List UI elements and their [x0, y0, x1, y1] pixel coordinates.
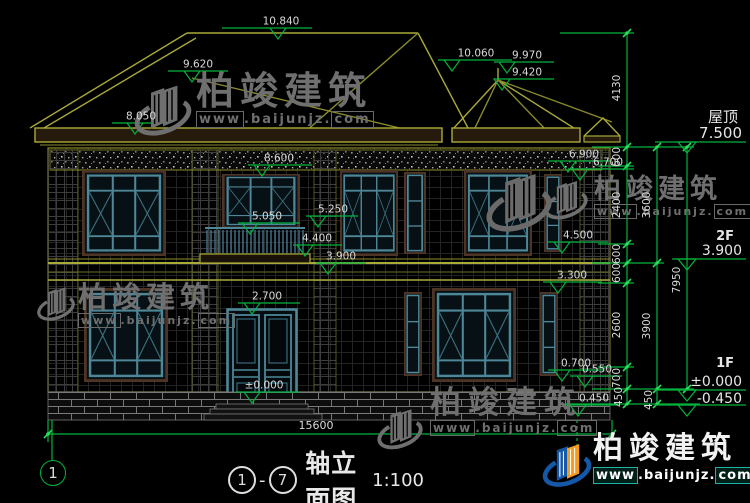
- company-logo-url-www: www: [593, 467, 638, 484]
- watermark-brand: 柏竣建筑: [430, 388, 597, 419]
- drawing-scale: 1:100: [372, 470, 424, 491]
- floor2-label: 2F: [716, 229, 734, 244]
- watermark-url-mid: .baijunjz.: [475, 421, 557, 435]
- level-2700: 2.700: [252, 292, 282, 303]
- company-logo-url-mid: .baijunjz.: [638, 468, 715, 483]
- watermark-url-mid: .baijunjz.: [244, 112, 331, 127]
- level-4500: 4.500: [563, 231, 593, 242]
- level-10840: 10.840: [263, 17, 300, 28]
- watermark-brand: 柏竣建筑: [196, 72, 374, 110]
- level-4400: 4.400: [302, 234, 332, 245]
- elevation-drawing-canvas: 柏竣建筑 www.baijunjz.com 柏竣建筑 www.baijunjz.…: [0, 0, 750, 503]
- level-10060: 10.060: [458, 49, 495, 60]
- title-axis-start-bubble: 1: [228, 466, 256, 494]
- title-axis-end: 7: [278, 471, 288, 489]
- level-8050: 8.050: [126, 112, 156, 123]
- total-width-dim: 15600: [299, 420, 334, 431]
- vdim-600-b: 600: [612, 244, 623, 264]
- level-0450: 0.450: [579, 394, 609, 405]
- level-9620: 9.620: [183, 60, 213, 71]
- level-3300: 3.300: [557, 271, 587, 282]
- title-block: 1 - 7 轴立面图 1:100: [228, 444, 424, 503]
- vdim-4130: 4130: [612, 75, 623, 102]
- axis-bubble-number: 1: [48, 464, 58, 482]
- level-9970: 9.970: [512, 51, 542, 62]
- vdim-3600: 3600: [642, 192, 653, 219]
- roof-level: 7.500: [699, 124, 742, 142]
- watermark-url-com: com: [331, 111, 373, 128]
- watermark-brand-block: 柏竣建筑 www.baijunjz.com: [196, 72, 374, 126]
- vdim-700: 700: [612, 368, 623, 388]
- vdim-450-a: 450: [614, 387, 625, 407]
- floor1-level: ±0.000: [690, 374, 742, 390]
- vdim-600-c: 600: [612, 263, 623, 283]
- level-9420: 9.420: [512, 68, 542, 79]
- vdim-600-a: 600: [612, 147, 623, 167]
- level-5050: 5.050: [252, 212, 282, 223]
- watermark-url-www: www: [196, 111, 244, 128]
- company-logo-url-com: com: [715, 467, 750, 484]
- drawing-title: 轴立面图: [299, 444, 365, 503]
- title-dash: -: [259, 470, 266, 491]
- level-8600: 8.600: [264, 154, 294, 165]
- vdim-7950: 7950: [672, 267, 683, 294]
- level-5250: 5.250: [318, 205, 348, 216]
- watermark-url-com: com: [714, 204, 750, 219]
- company-logo-icon: [541, 436, 593, 492]
- watermark-logo-icon: [36, 276, 76, 330]
- watermark-brand-block: 柏竣建筑 www.baijunjz.com: [78, 283, 235, 326]
- company-logo: 柏竣建筑 www.baijunjz.com: [541, 434, 750, 483]
- vdim-2600: 2600: [612, 312, 623, 339]
- watermark-url-mid: .baijunjz.: [121, 314, 198, 327]
- watermark-brand: 柏竣建筑: [78, 283, 235, 312]
- company-logo-brand: 柏竣建筑: [593, 434, 750, 464]
- level-ground: ±0.000: [245, 381, 284, 392]
- level-0550: 0.550: [582, 365, 612, 376]
- watermark-logo-icon: [133, 68, 193, 150]
- vdim-450-b: 450: [644, 390, 655, 410]
- watermark-brand-block: 柏竣建筑 www.baijunjz.com: [430, 388, 597, 434]
- watermark-url-com: com: [198, 313, 236, 328]
- title-axis-end-bubble: 7: [269, 466, 297, 494]
- axis-bubble-1: 1: [40, 460, 66, 486]
- level-3900-mid: 3.900: [326, 252, 356, 263]
- cad-linework: [0, 0, 750, 503]
- floor1-label: 1F: [716, 356, 734, 371]
- watermark-url-www: www: [430, 420, 475, 436]
- watermark-logo-icon: [483, 163, 555, 239]
- title-axis-start: 1: [237, 471, 247, 489]
- vdim-3900: 3900: [642, 313, 653, 340]
- watermark-url-www: www: [78, 313, 121, 328]
- below-grade-level: -0.450: [697, 391, 742, 407]
- floor2-level: 3.900: [702, 243, 742, 259]
- vdim-2400: 2400: [612, 192, 623, 219]
